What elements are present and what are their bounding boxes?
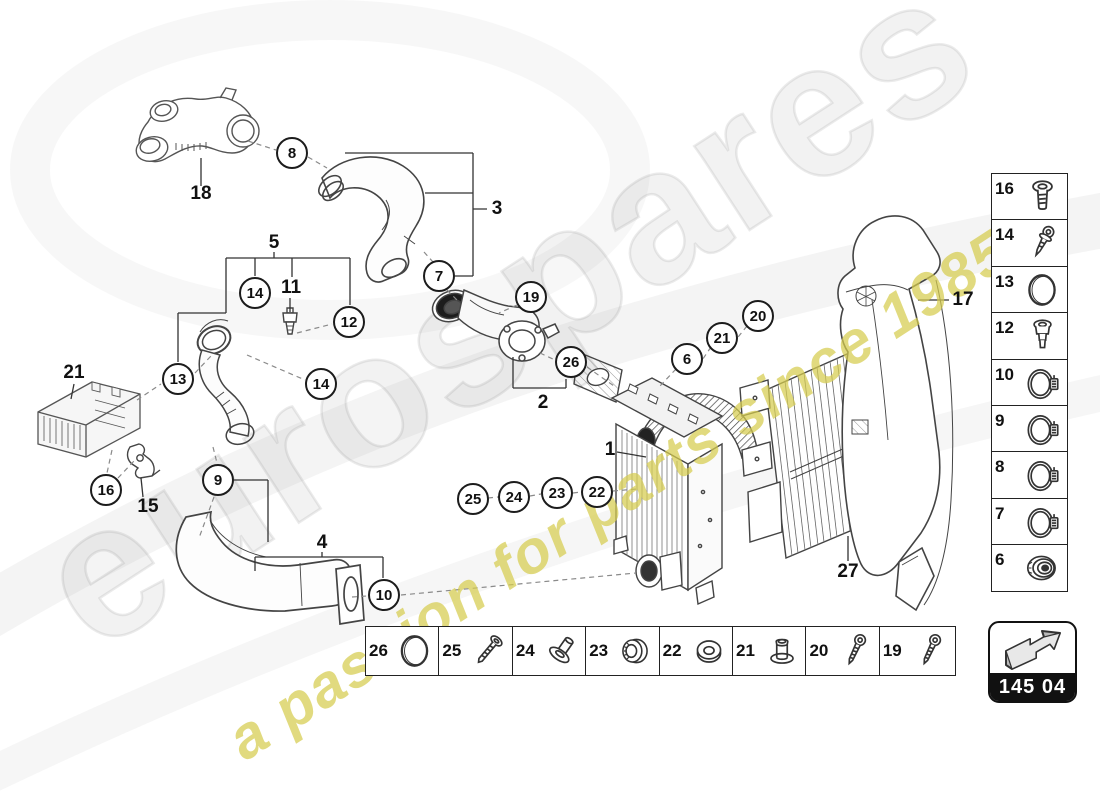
hose-clamp-icon xyxy=(1021,454,1064,496)
legend-row-7[interactable]: 7 xyxy=(991,498,1068,546)
legend-number: 6 xyxy=(995,547,1021,570)
legend-row-13[interactable]: 13 xyxy=(991,266,1068,314)
legend-number: 19 xyxy=(883,641,908,661)
tapping-screw-icon xyxy=(1021,222,1064,264)
legend-number: 20 xyxy=(809,641,834,661)
flanged-screw-icon xyxy=(1021,176,1064,218)
callout-circle-22[interactable]: 22 xyxy=(581,476,613,508)
pan-head-screw-icon xyxy=(908,630,952,672)
legend-number: 23 xyxy=(589,641,614,661)
legend-number: 16 xyxy=(995,176,1021,199)
legend-row-9[interactable]: 9 xyxy=(991,405,1068,453)
blind-rivet-icon xyxy=(761,630,803,672)
legend-number: 12 xyxy=(995,315,1021,338)
strip-cell-23[interactable]: 23 xyxy=(585,626,660,676)
legend-row-8[interactable]: 8 xyxy=(991,451,1068,499)
o-ring-icon xyxy=(1021,269,1064,311)
long-bolt-icon xyxy=(467,630,509,672)
legend-row-10[interactable]: 10 xyxy=(991,359,1068,407)
hose-clamp-icon xyxy=(1021,362,1064,404)
callout-circle-6[interactable]: 6 xyxy=(671,343,703,375)
part-label-15[interactable]: 15 xyxy=(137,496,158,518)
legend-number: 22 xyxy=(663,641,688,661)
legend-row-6[interactable]: 6 xyxy=(991,544,1068,592)
hose-clamp-icon xyxy=(1021,501,1064,543)
callout-circle-21[interactable]: 21 xyxy=(706,322,738,354)
strip-cell-22[interactable]: 22 xyxy=(659,626,734,676)
callout-circle-12[interactable]: 12 xyxy=(333,306,365,338)
part-label-21[interactable]: 21 xyxy=(63,362,84,384)
legend-row-14[interactable]: 14 xyxy=(991,219,1068,267)
callout-circle-10[interactable]: 10 xyxy=(368,579,400,611)
legend-number: 26 xyxy=(369,641,394,661)
grommet-bearing-icon xyxy=(1021,547,1064,589)
nav-arrow-icon xyxy=(990,623,1075,673)
callout-circle-14a[interactable]: 14 xyxy=(239,277,271,309)
callout-circle-24[interactable]: 24 xyxy=(498,481,530,513)
washer-icon xyxy=(688,630,730,672)
callout-circle-16[interactable]: 16 xyxy=(90,474,122,506)
legend-number: 21 xyxy=(736,641,761,661)
hardware-legend-column: 16 14 13 12 10 9 8 7 xyxy=(991,173,1068,592)
flat-head-bolt-icon xyxy=(541,630,583,672)
callout-circle-8[interactable]: 8 xyxy=(276,137,308,169)
callout-circle-26[interactable]: 26 xyxy=(555,346,587,378)
plastic-rivet-icon xyxy=(1021,315,1064,357)
part-label-27[interactable]: 27 xyxy=(837,561,858,583)
legend-number: 7 xyxy=(995,501,1021,524)
callout-circle-9[interactable]: 9 xyxy=(202,464,234,496)
part-18-intake-hose xyxy=(133,88,259,165)
legend-number: 8 xyxy=(995,454,1021,477)
part-3-charge-hose xyxy=(315,157,424,282)
sealing-cap-icon xyxy=(614,630,656,672)
part-label-3[interactable]: 3 xyxy=(492,198,503,220)
strip-cell-21[interactable]: 21 xyxy=(732,626,807,676)
callout-circle-19[interactable]: 19 xyxy=(515,281,547,313)
exploded-diagram-canvas: eurospares xyxy=(0,0,1100,800)
callout-circle-20[interactable]: 20 xyxy=(742,300,774,332)
parts-diagram-page: eurospares xyxy=(0,0,1100,800)
strip-cell-19[interactable]: 19 xyxy=(879,626,956,676)
hose-clamp-icon xyxy=(1021,408,1064,450)
legend-number: 14 xyxy=(995,222,1021,245)
page-code: 145 04 xyxy=(990,673,1075,701)
legend-row-16[interactable]: 16 xyxy=(991,173,1068,221)
part-label-11[interactable]: 11 xyxy=(281,277,301,299)
part-label-1[interactable]: 1 xyxy=(605,439,616,461)
part-label-5[interactable]: 5 xyxy=(269,232,280,254)
callout-circle-7[interactable]: 7 xyxy=(423,260,455,292)
diagram-group-badge[interactable]: 145 04 xyxy=(988,621,1077,703)
callout-circle-25[interactable]: 25 xyxy=(457,483,489,515)
legend-number: 24 xyxy=(516,641,541,661)
hardware-legend-strip: 26 25 24 23 22 21 20 19 xyxy=(365,626,956,676)
part-label-18[interactable]: 18 xyxy=(190,183,211,205)
legend-number: 25 xyxy=(442,641,467,661)
pan-head-screw-icon xyxy=(834,630,876,672)
legend-row-12[interactable]: 12 xyxy=(991,312,1068,360)
strip-cell-25[interactable]: 25 xyxy=(438,626,513,676)
legend-number: 13 xyxy=(995,269,1021,292)
callout-circle-14b[interactable]: 14 xyxy=(305,368,337,400)
strip-cell-26[interactable]: 26 xyxy=(365,626,440,676)
strip-cell-20[interactable]: 20 xyxy=(805,626,880,676)
callout-circle-23[interactable]: 23 xyxy=(541,477,573,509)
part-label-4[interactable]: 4 xyxy=(317,532,328,554)
callout-circle-13[interactable]: 13 xyxy=(162,363,194,395)
part-label-17[interactable]: 17 xyxy=(952,289,973,311)
strip-cell-24[interactable]: 24 xyxy=(512,626,587,676)
o-ring-icon xyxy=(394,630,436,672)
legend-number: 9 xyxy=(995,408,1021,431)
part-label-2[interactable]: 2 xyxy=(538,392,549,414)
legend-number: 10 xyxy=(995,362,1021,385)
